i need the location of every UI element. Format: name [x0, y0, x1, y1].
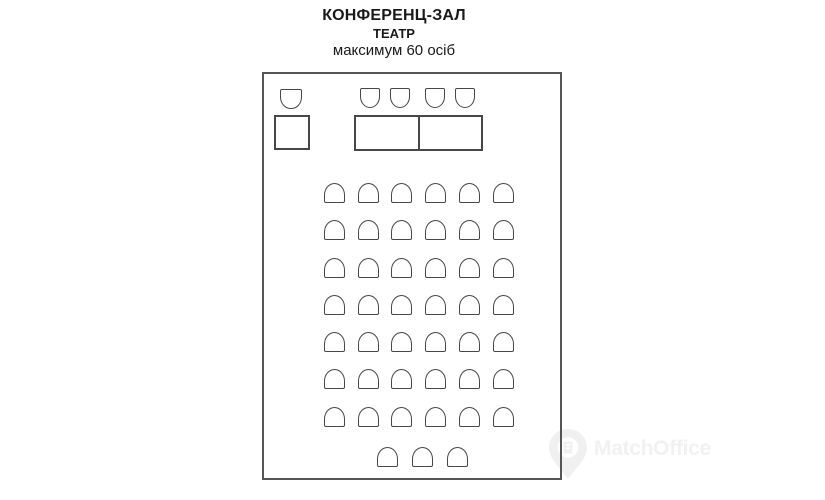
audience-chair	[324, 258, 345, 278]
back-row-chair	[377, 447, 398, 467]
audience-chair	[358, 183, 379, 203]
audience-chair	[391, 220, 412, 240]
audience-chair	[324, 369, 345, 389]
head-table-chair	[390, 88, 410, 108]
audience-chair	[493, 220, 514, 240]
audience-chair	[425, 332, 446, 352]
audience-chair	[324, 332, 345, 352]
audience-chair	[391, 369, 412, 389]
audience-chair	[425, 295, 446, 315]
head-table-divider	[418, 117, 420, 149]
back-row-chair	[412, 447, 433, 467]
audience-chair	[493, 183, 514, 203]
audience-chair	[324, 183, 345, 203]
head-table-chair	[360, 88, 380, 108]
head-table-chair	[425, 88, 445, 108]
audience-chair	[425, 258, 446, 278]
audience-chair	[324, 407, 345, 427]
audience-chair	[459, 369, 480, 389]
audience-chair	[493, 332, 514, 352]
speaker-chair	[280, 89, 302, 109]
audience-chair	[391, 183, 412, 203]
audience-chair	[425, 407, 446, 427]
audience-chair	[358, 369, 379, 389]
audience-chair	[391, 332, 412, 352]
audience-chair	[358, 407, 379, 427]
room-name-title: КОНФЕРЕНЦ-ЗАЛ	[194, 6, 594, 25]
audience-chair	[425, 220, 446, 240]
audience-chair	[358, 295, 379, 315]
audience-chair	[493, 369, 514, 389]
layout-name-title: ТЕАТР	[194, 25, 594, 42]
audience-chair	[493, 295, 514, 315]
audience-chair	[459, 220, 480, 240]
audience-chair	[493, 258, 514, 278]
audience-chair	[459, 258, 480, 278]
room-outline	[262, 72, 562, 480]
audience-chair	[459, 407, 480, 427]
lectern	[274, 115, 310, 150]
head-table	[354, 115, 483, 151]
audience-chair	[425, 183, 446, 203]
back-row-chair	[447, 447, 468, 467]
watermark: MatchOffice	[546, 428, 711, 480]
audience-chair	[459, 295, 480, 315]
floorplan-page: КОНФЕРЕНЦ-ЗАЛ ТЕАТР максимум 60 осіб Mat…	[0, 0, 825, 500]
capacity-subtitle: максимум 60 осіб	[194, 42, 594, 60]
audience-chair	[493, 407, 514, 427]
audience-chair	[324, 220, 345, 240]
audience-chair	[324, 295, 345, 315]
audience-chair	[459, 183, 480, 203]
plan-title-block: КОНФЕРЕНЦ-ЗАЛ ТЕАТР максимум 60 осіб	[194, 6, 594, 60]
audience-chair	[358, 258, 379, 278]
audience-chair	[425, 369, 446, 389]
head-table-chair	[455, 88, 475, 108]
audience-chair	[459, 332, 480, 352]
watermark-text: MatchOffice	[594, 437, 711, 461]
audience-chair	[391, 407, 412, 427]
audience-chair	[358, 220, 379, 240]
audience-chair	[391, 258, 412, 278]
audience-chair	[358, 332, 379, 352]
audience-chair	[391, 295, 412, 315]
